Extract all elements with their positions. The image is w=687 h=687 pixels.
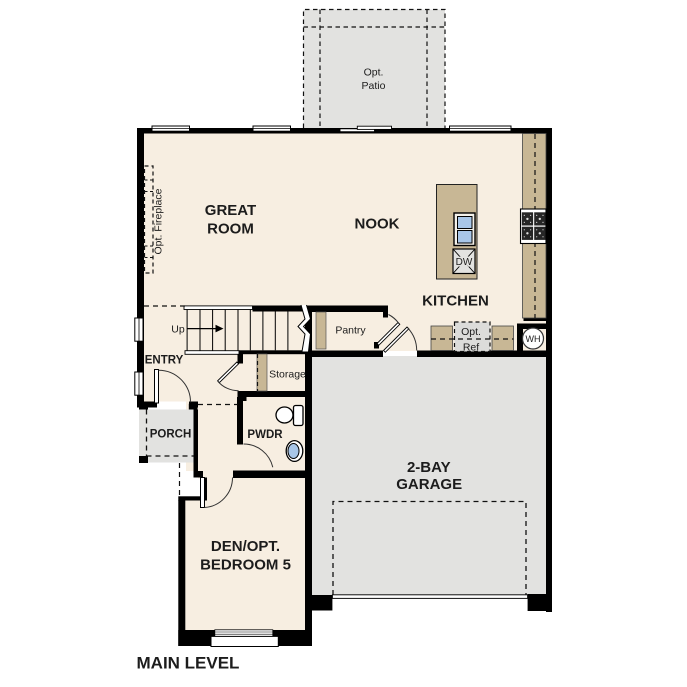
svg-text:Up: Up	[171, 324, 185, 336]
svg-text:2-BAY: 2-BAY	[407, 459, 451, 476]
svg-text:ENTRY: ENTRY	[145, 355, 184, 367]
svg-text:Ref: Ref	[463, 342, 479, 354]
svg-text:KITCHEN: KITCHEN	[422, 292, 489, 309]
svg-text:PORCH: PORCH	[150, 429, 192, 441]
svg-text:PWDR: PWDR	[247, 429, 283, 441]
svg-text:Opt. Fireplace: Opt. Fireplace	[153, 188, 165, 254]
svg-text:MAIN LEVEL: MAIN LEVEL	[137, 654, 240, 673]
svg-text:GREAT: GREAT	[205, 202, 256, 219]
svg-text:Patio: Patio	[362, 80, 386, 92]
svg-text:ROOM: ROOM	[207, 221, 254, 238]
svg-text:Storage: Storage	[269, 369, 306, 381]
svg-text:DEN/OPT.: DEN/OPT.	[211, 538, 280, 555]
svg-text:DW: DW	[456, 257, 473, 268]
svg-text:NOOK: NOOK	[355, 215, 400, 232]
svg-text:WH: WH	[526, 334, 541, 344]
svg-text:GARAGE: GARAGE	[396, 476, 462, 493]
svg-text:Opt.: Opt.	[364, 67, 384, 79]
svg-text:Pantry: Pantry	[335, 325, 366, 337]
svg-text:BEDROOM 5: BEDROOM 5	[200, 557, 291, 574]
svg-text:Opt.: Opt.	[461, 326, 481, 338]
